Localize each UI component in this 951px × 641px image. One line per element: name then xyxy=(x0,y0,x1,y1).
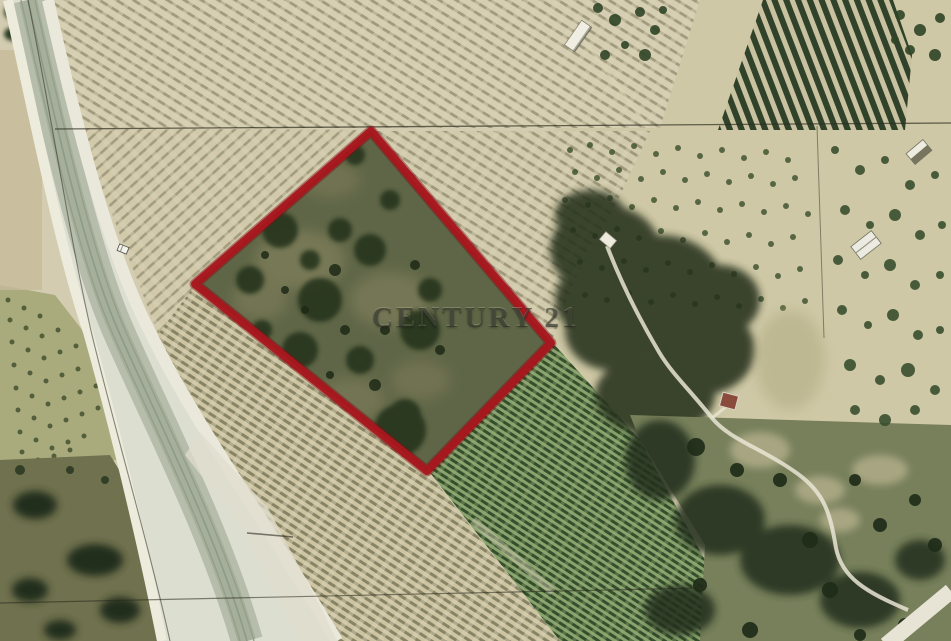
aerial-photo: CENTURY 21 xyxy=(0,0,951,641)
watermark-text: CENTURY 21 xyxy=(372,302,580,335)
clearing-patch xyxy=(755,310,825,410)
